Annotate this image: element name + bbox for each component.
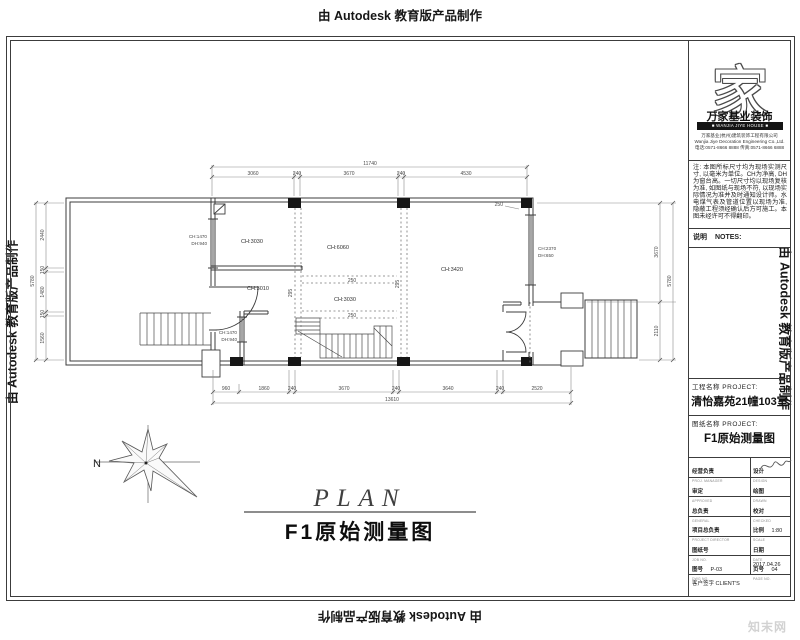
cad-sheet: { "banner": "由 Autodesk 教育版产品制作", "water… — [0, 0, 800, 640]
dim-text: 4530 — [460, 171, 471, 177]
dim-text: 1480 — [40, 286, 46, 297]
dim-top — [212, 165, 527, 196]
beam-dim: 295 — [288, 289, 294, 298]
dim-text: 240 — [397, 171, 406, 177]
dim-text: 2440 — [40, 229, 46, 240]
room-label: CH:6060 — [327, 245, 349, 251]
dim-text: 11740 — [363, 161, 377, 167]
window-label: CH:2370 — [538, 246, 557, 251]
north-compass: N — [93, 425, 200, 503]
dim-text: 5780 — [30, 275, 36, 286]
exterior-stair-treads — [592, 300, 631, 358]
dim-text: 1560 — [40, 332, 46, 343]
doors-windows — [208, 215, 536, 352]
dim-text: 1860 — [258, 386, 269, 392]
dim-text: 240 — [496, 386, 505, 392]
room-label: CH:3420 — [441, 267, 463, 273]
dim-text: 3640 — [442, 386, 453, 392]
window-entry-wall — [525, 215, 536, 285]
ticks — [34, 165, 675, 405]
dim-left — [34, 203, 64, 360]
plan-caption-title: PLAN — [240, 485, 480, 513]
north-label: N — [93, 458, 101, 470]
column — [288, 198, 301, 208]
column — [288, 357, 301, 366]
wall-openings — [207, 286, 535, 352]
window-interior — [237, 317, 247, 342]
column — [521, 198, 532, 208]
window-label: DH:940 — [221, 337, 237, 342]
room-label: CH:3010 — [247, 286, 269, 292]
room-labels: CH:3030 CH:6060 CH:3010 CH:3030 CH:3420 — [241, 239, 463, 303]
dim-text: 3060 — [247, 171, 258, 177]
beam-dashed-lines — [295, 208, 530, 365]
dim-text: 150 — [40, 266, 46, 275]
beam-dim: 250 — [348, 278, 357, 284]
dim-text: 5780 — [667, 275, 673, 286]
beam-lines — [295, 208, 530, 365]
column — [230, 357, 243, 366]
dim-text: 240 — [288, 386, 297, 392]
dim-text: 3670 — [654, 246, 660, 257]
beam-dim: 250 — [348, 313, 357, 319]
plan-caption-subtitle: F1原始测量图 — [240, 516, 480, 546]
dim-text: 960 — [222, 386, 231, 392]
room-label: CH:3030 — [334, 297, 356, 303]
leader-250 — [505, 206, 519, 209]
dim-text: 2110 — [654, 325, 660, 336]
entry-pillar-bottom — [561, 351, 583, 366]
dim-text: 240 — [392, 386, 401, 392]
dimension-lines — [34, 165, 676, 405]
interior-door-swing — [215, 287, 258, 330]
dim-text: 3670 — [338, 386, 349, 392]
dimension-texts: 11740 3060 240 3670 240 4530 960 1860 24… — [30, 161, 673, 403]
room-label: CH:3030 — [241, 239, 263, 245]
side-porch — [202, 350, 220, 377]
entry-pillar-top — [561, 293, 583, 308]
leader-dim: 250 — [495, 202, 504, 208]
window-label: CH:1470 — [219, 330, 238, 335]
window-left-wing — [208, 219, 218, 268]
corner-watermark: 知末网 — [748, 618, 787, 635]
dim-text: 240 — [293, 171, 302, 177]
window-label: DH:650 — [538, 253, 554, 258]
dim-text: 2520 — [531, 386, 542, 392]
column — [397, 198, 410, 208]
compass-center — [145, 462, 148, 465]
beam-dim: 295 — [395, 280, 401, 289]
column — [397, 357, 410, 366]
compass-star — [109, 429, 197, 497]
dimension-ticks — [34, 165, 675, 405]
entry-opening — [528, 306, 535, 352]
dim-text: 150 — [40, 310, 46, 319]
door-opening — [207, 286, 217, 332]
window-label: CH:1470 — [189, 234, 208, 239]
entry-double-door-swing — [506, 312, 526, 352]
left-wing-stair — [140, 313, 211, 345]
dim-text: 3670 — [343, 171, 354, 177]
dim-text: 13610 — [385, 397, 399, 403]
window-label: DH:940 — [191, 241, 207, 246]
middle-stair — [296, 318, 392, 358]
caption-rule — [244, 511, 476, 513]
columns — [230, 198, 532, 366]
